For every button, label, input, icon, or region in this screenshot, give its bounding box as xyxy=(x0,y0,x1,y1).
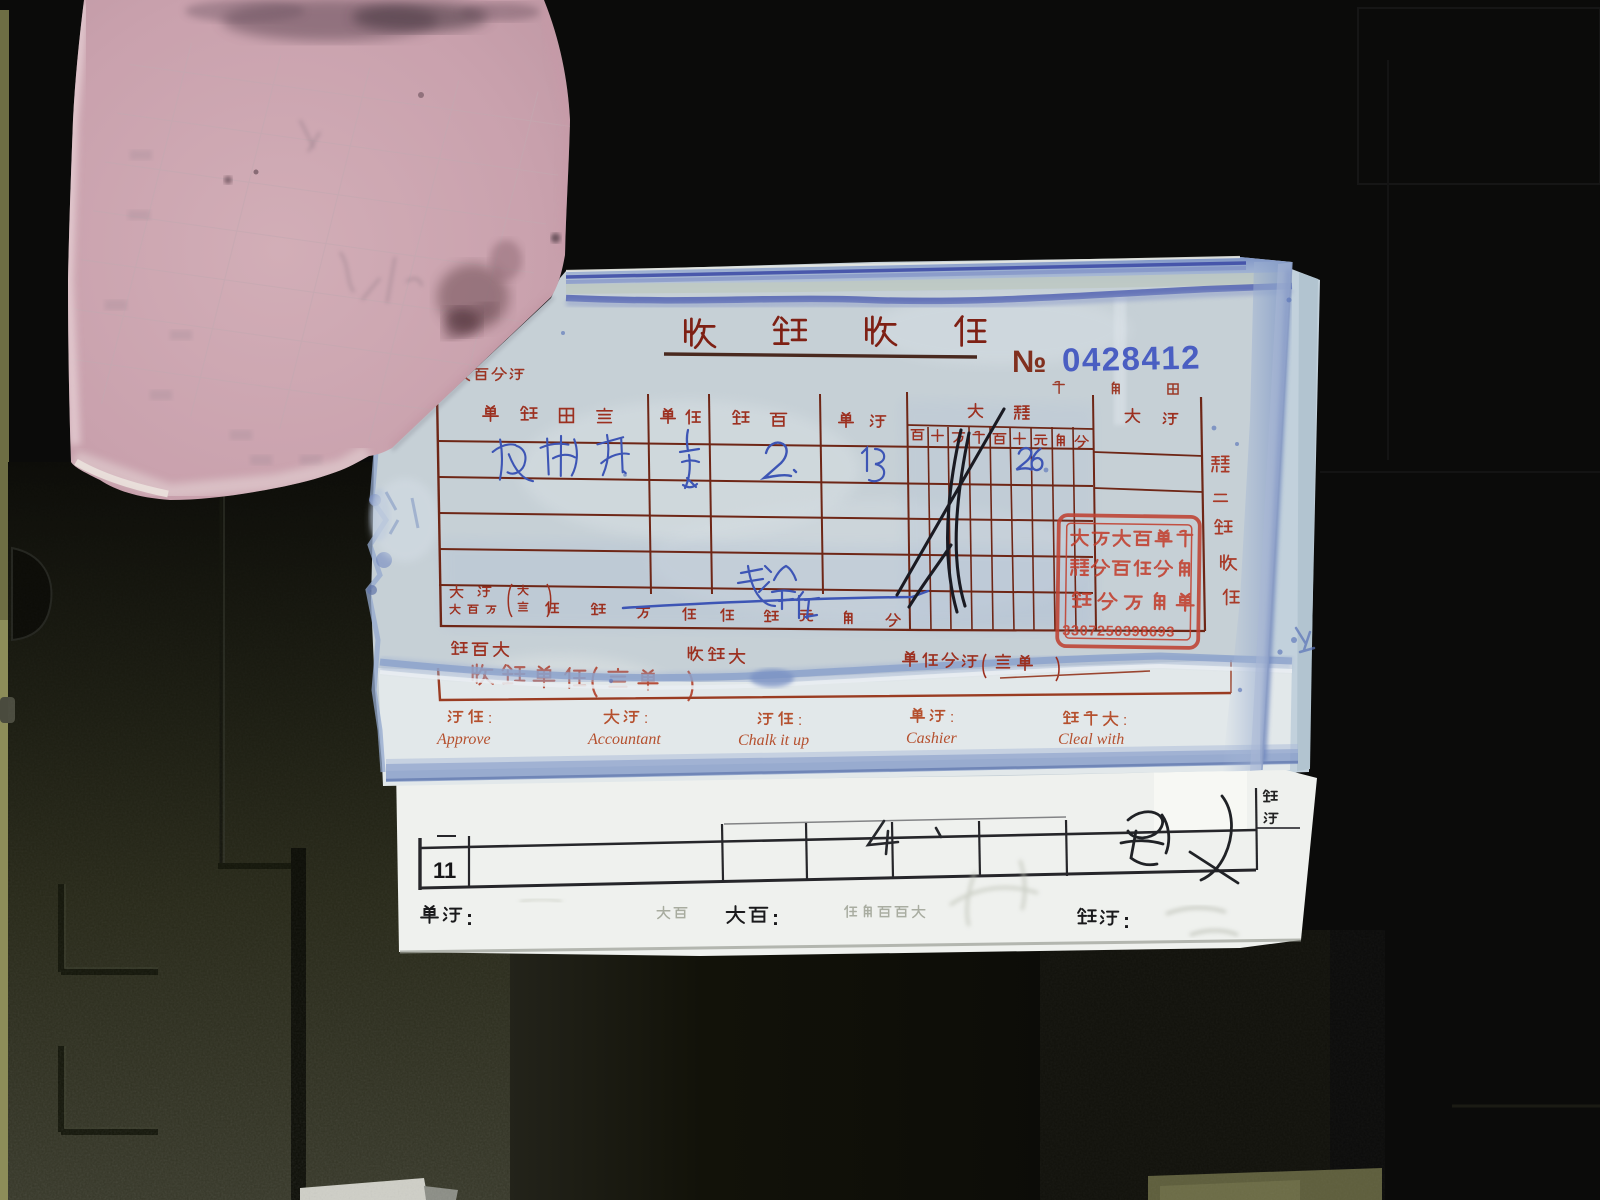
svg-text:Cleal with: Cleal with xyxy=(1058,731,1124,748)
svg-text::: : xyxy=(798,712,802,729)
svg-text::: : xyxy=(772,907,779,930)
svg-text::: : xyxy=(1123,910,1130,933)
svg-text::: : xyxy=(466,907,473,930)
svg-text:Chalk it up: Chalk it up xyxy=(738,732,809,749)
svg-text:0428412: 0428412 xyxy=(1062,339,1202,379)
svg-text::: : xyxy=(950,709,954,726)
svg-text:№: № xyxy=(1012,344,1047,379)
svg-text:3307250398693: 3307250398693 xyxy=(1062,623,1175,641)
svg-text:11: 11 xyxy=(433,858,456,883)
svg-text::: : xyxy=(644,710,648,727)
svg-text::: : xyxy=(488,710,492,727)
svg-text::: : xyxy=(1123,712,1127,729)
svg-text:Accountant: Accountant xyxy=(587,731,661,748)
svg-text:Approve: Approve xyxy=(436,731,491,748)
svg-text:Cashier: Cashier xyxy=(906,730,957,747)
